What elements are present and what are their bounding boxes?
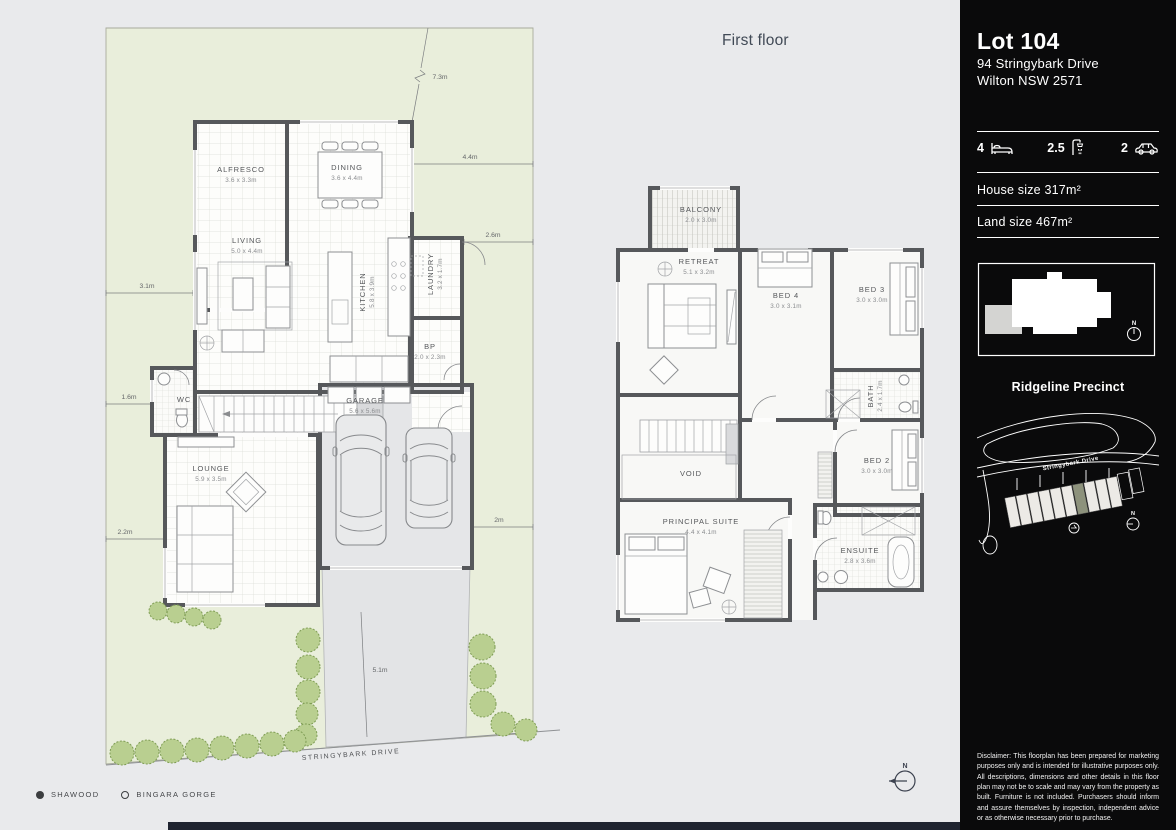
address-line2: Wilton NSW 2571 [977,72,1159,89]
svg-text:5.8 x 3.9m: 5.8 x 3.9m [369,276,376,307]
bed4-bed [758,249,812,287]
legend-item-bingara-gorge: BINGARA GORGE [121,790,216,799]
svg-text:3.0 x 3.0m: 3.0 x 3.0m [861,468,892,475]
divider [977,131,1159,132]
address-line1: 94 Stringybark Drive [977,55,1159,72]
dim-left-lower: 2.2m [117,529,132,536]
room-ensuite: ENSUITE [841,546,880,555]
room-bed4: BED 4 [773,291,799,300]
first-floor-title: First floor [722,32,789,50]
dim-top-boundary: 7.3m [432,74,447,81]
svg-text:5.9 x 3.5m: 5.9 x 3.5m [195,476,226,483]
dim-top-right: 4.4m [462,154,477,161]
room-balcony: BALCONY [680,205,722,214]
svg-text:N: N [902,763,907,770]
svg-text:3.0 x 3.0m: 3.0 x 3.0m [856,297,887,304]
stat-bathrooms: 2.5 [1047,139,1087,156]
dim-left-mid: 1.6m [121,394,136,401]
bed2-bed [892,430,918,490]
stat-garages: 2 [1121,141,1159,155]
room-laundry: LAUNDRY [426,253,435,295]
svg-text:2.0 x 3.0m: 2.0 x 3.0m [685,217,716,224]
svg-text:4.4 x 4.1m: 4.4 x 4.1m [685,529,716,536]
room-bp: BP [424,342,436,351]
room-bed3: BED 3 [859,285,885,294]
divider [977,237,1159,238]
floorplan-canvas: 5.1m STRINGYBARK DRIVE 7.3m 4.4m 2.6m 3.… [0,0,960,830]
map-lots [1004,468,1146,528]
stat-bedrooms: 4 [977,140,1014,156]
svg-text:5.1 x 3.2m: 5.1 x 3.2m [683,269,714,276]
bed-icon [990,140,1014,156]
svg-text:N: N [1132,321,1136,327]
svg-text:5.0 x 4.4m: 5.0 x 4.4m [231,248,262,255]
land-size: Land size 467m² [977,215,1159,229]
room-wc: WC [177,395,191,404]
dim-left-upper: 3.1m [139,283,154,290]
lot-title: Lot 104 [977,28,1159,55]
svg-text:2.8 x 3.6m: 2.8 x 3.6m [844,558,875,565]
precinct-title: Ridgeline Precinct [977,380,1159,394]
site-plan: 5.1m STRINGYBARK DRIVE 7.3m 4.4m 2.6m 3.… [106,28,560,765]
room-garage: GARAGE [346,396,384,405]
svg-text:3.6 x 3.3m: 3.6 x 3.3m [225,177,256,184]
disclaimer: Disclaimer: This floorplan has been prep… [977,752,1159,825]
room-alfresco: ALFRESCO [217,165,265,174]
address: 94 Stringybark Drive Wilton NSW 2571 [977,55,1159,89]
svg-text:2.4 x 1.7m: 2.4 x 1.7m [877,380,884,411]
room-lounge: LOUNGE [192,464,229,473]
garage-car-2 [403,428,455,528]
room-void: VOID [680,469,702,478]
first-floor-plan: BALCONY 2.0 x 3.0m RETREAT 5.1 x 3.2m BE… [616,186,924,622]
room-principal: PRINCIPAL SUITE [663,517,739,526]
room-bed2: BED 2 [864,456,890,465]
svg-text:5.6 x 5.6m: 5.6 x 5.6m [349,408,380,415]
svg-text:3.2 x 1.7m: 3.2 x 1.7m [437,258,444,289]
legend-label: BINGARA GORGE [136,790,216,799]
footprint-house [1012,272,1111,334]
svg-text:3.6 x 4.4m: 3.6 x 4.4m [331,175,362,182]
map-compass-north: N [1127,511,1139,530]
room-dining: DINING [331,163,363,172]
divider [977,205,1159,206]
north-compass-icon: N [889,763,915,791]
open-dot-icon [121,791,129,799]
street-label: STRINGYBARK DRIVE [302,748,401,762]
property-stats: 4 2.5 2 [977,139,1159,156]
bottom-bar [168,822,960,830]
info-sidebar: Lot 104 94 Stringybark Drive Wilton NSW … [960,0,1176,830]
shower-icon [1071,139,1088,156]
room-retreat: RETREAT [679,257,720,266]
car-icon [1134,141,1159,155]
dim-right-lower: 2m [494,517,504,524]
legend-item-shawood: SHAWOOD [36,790,99,799]
svg-text:2.0 x 2.3m: 2.0 x 2.3m [414,354,445,361]
dim-right-upper: 2.6m [485,232,500,239]
legend-label: SHAWOOD [51,790,99,799]
svg-text:N: N [1131,511,1135,517]
filled-dot-icon [36,791,44,799]
room-bath: BATH [866,384,875,407]
bed3-bed [890,263,918,335]
room-kitchen: KITCHEN [358,272,367,311]
divider [977,172,1159,173]
room-living: LIVING [232,236,262,245]
lot-footprint-diagram: N [977,262,1159,358]
map-compass-small [1069,523,1079,533]
map-roads [977,414,1159,554]
legend: SHAWOOD BINGARA GORGE [36,790,217,799]
garage-car-1 [333,415,389,545]
house-size: House size 317m² [977,183,1159,197]
dim-driveway: 5.1m [372,667,387,674]
driveway: 5.1m [322,566,470,747]
precinct-map: Stringybark Drive N [977,404,1159,574]
svg-text:3.0 x 3.1m: 3.0 x 3.1m [770,303,801,310]
